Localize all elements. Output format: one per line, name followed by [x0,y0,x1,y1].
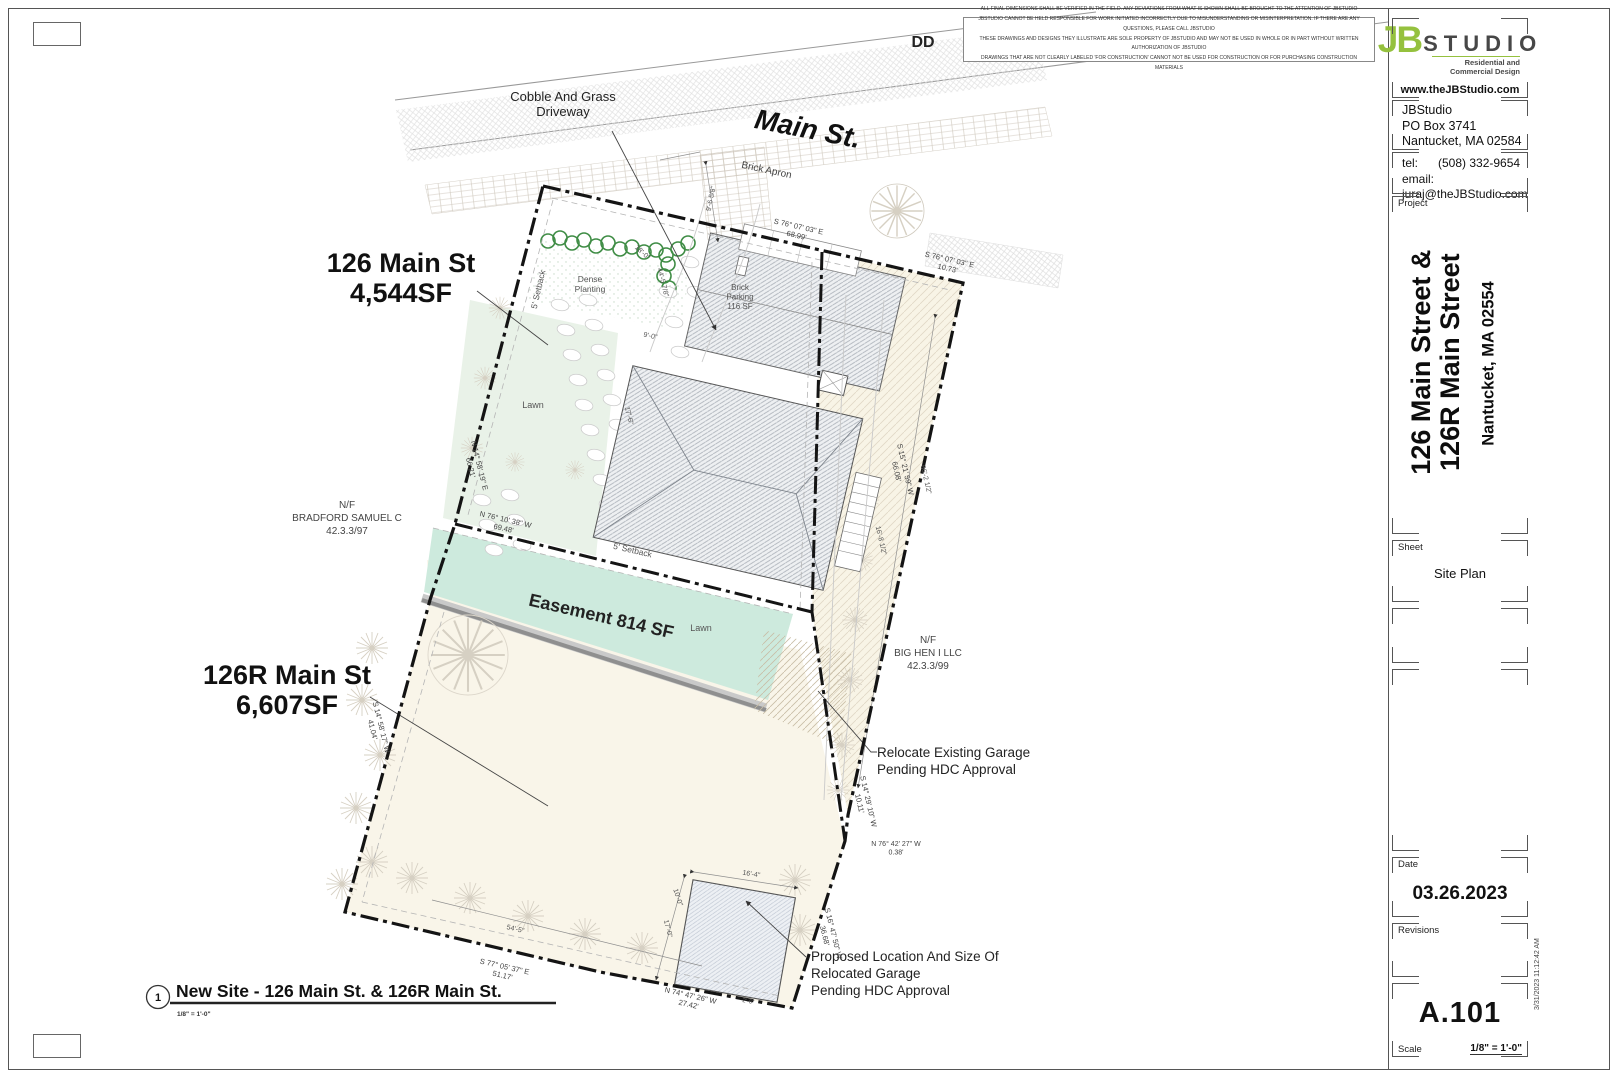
disclaimer-line: THESE DRAWINGS AND DESIGNS THEY ILLUSTRA… [970,35,1368,55]
drawing-title: New Site - 126 Main St. & 126R Main St. [176,981,502,1001]
dim-drive-width: 9'-0" [643,332,659,342]
corner-mark-top [33,22,81,46]
street-tree [870,184,924,238]
disclaimer-line: ALL FINAL DIMENSIONS SHALL BE VERIFIED I… [970,5,1368,15]
date-section: Date 03.26.2023 [1392,857,1528,917]
label-lot-126: 126 Main St4,544SF [327,248,476,308]
disclaimer-box: ALL FINAL DIMENSIONS SHALL BE VERIFIED I… [963,17,1375,62]
project-city: Nantucket, MA 02554 [1480,195,1499,533]
dim-corner: 2'-6" [742,998,755,1006]
tel-value: (508) 332-9654 [1438,156,1520,170]
revisions-section: Revisions [1392,923,1528,977]
sheet-section: Sheet Site Plan [1392,540,1528,602]
titleblock-divider [1388,8,1389,1070]
firm-name: JBStudio [1402,103,1528,119]
project-section: Project 126 Main Street & 126R Main Stre… [1392,196,1528,534]
tel-label: tel: [1402,156,1438,172]
firm-po-box: PO Box 3741 [1402,119,1528,135]
note-relocate-garage: Relocate Existing GaragePending HDC Appr… [877,745,1030,777]
firm-logo: JBSTUDIO [1392,18,1528,55]
revisions-label: Revisions [1398,925,1439,936]
firm-address-section: JBStudio PO Box 3741 Nantucket, MA 02584 [1392,100,1528,150]
label-lawn-1: Lawn [522,400,544,410]
firm-phone-row: tel:(508) 332-9654 [1402,156,1528,172]
sheet-name: Site Plan [1392,566,1528,581]
label-dd: DD [911,34,934,51]
project-title: 126 Main Street & 126R Main Street [1407,193,1465,531]
label-lot-126r: 126R Main St6,607SF [203,660,371,720]
firm-contact-section: tel:(508) 332-9654 email: juraj@theJBStu… [1392,152,1528,194]
corner-mark-bottom [33,1034,81,1058]
site-plan-canvas: DDMain St.Cobble And GrassDrivewayBrick … [0,0,1388,1080]
drawing-scale: 1/8" = 1'-0" [177,1011,211,1018]
empty-section-2 [1392,669,1528,851]
date-label: Date [1398,859,1418,870]
sheet-label: Sheet [1398,542,1423,553]
label-lawn-2: Lawn [690,623,712,633]
bearing-east-3: N 76° 42' 27" W0.38' [871,840,921,856]
plot-timestamp: 3/31/2023 11:12:42 AM [1534,938,1541,1010]
label-abutter-bighen: N/FBIG HEN I LLC42.3.3/99 [894,635,962,672]
proposed-garage [675,880,796,1002]
project-title-line2: 126R Main Street [1436,193,1465,531]
disclaimer-line: DRAWINGS THAT ARE NOT CLEARLY LABELED 'F… [970,54,1368,74]
drawing-number-bubble-text: 1 [155,992,161,1004]
logo-section: JBSTUDIO Residential and Commercial Desi… [1392,18,1528,98]
drawing-sheet: DDMain St.Cobble And GrassDrivewayBrick … [0,0,1620,1080]
project-title-line1: 126 Main Street & [1407,193,1436,531]
disclaimer-line: JBSTUDIO CANNOT BE HELD RESPONSIBLE FOR … [970,15,1368,35]
sheet-number-section: A.101 Scale 1/8" = 1'-0" [1392,983,1528,1057]
logo-tagline: Residential and Commercial Design [1432,56,1520,76]
logo-jb-mark: JB [1378,26,1421,55]
sheet-number: A.101 [1392,997,1528,1030]
label-dense-planting: DensePlanting [575,274,606,294]
logo-studio-word: STUDIO [1423,33,1542,55]
label-abutter-bradford: N/FBRADFORD SAMUEL C42.3.3/97 [292,500,402,537]
empty-section-1 [1392,608,1528,663]
